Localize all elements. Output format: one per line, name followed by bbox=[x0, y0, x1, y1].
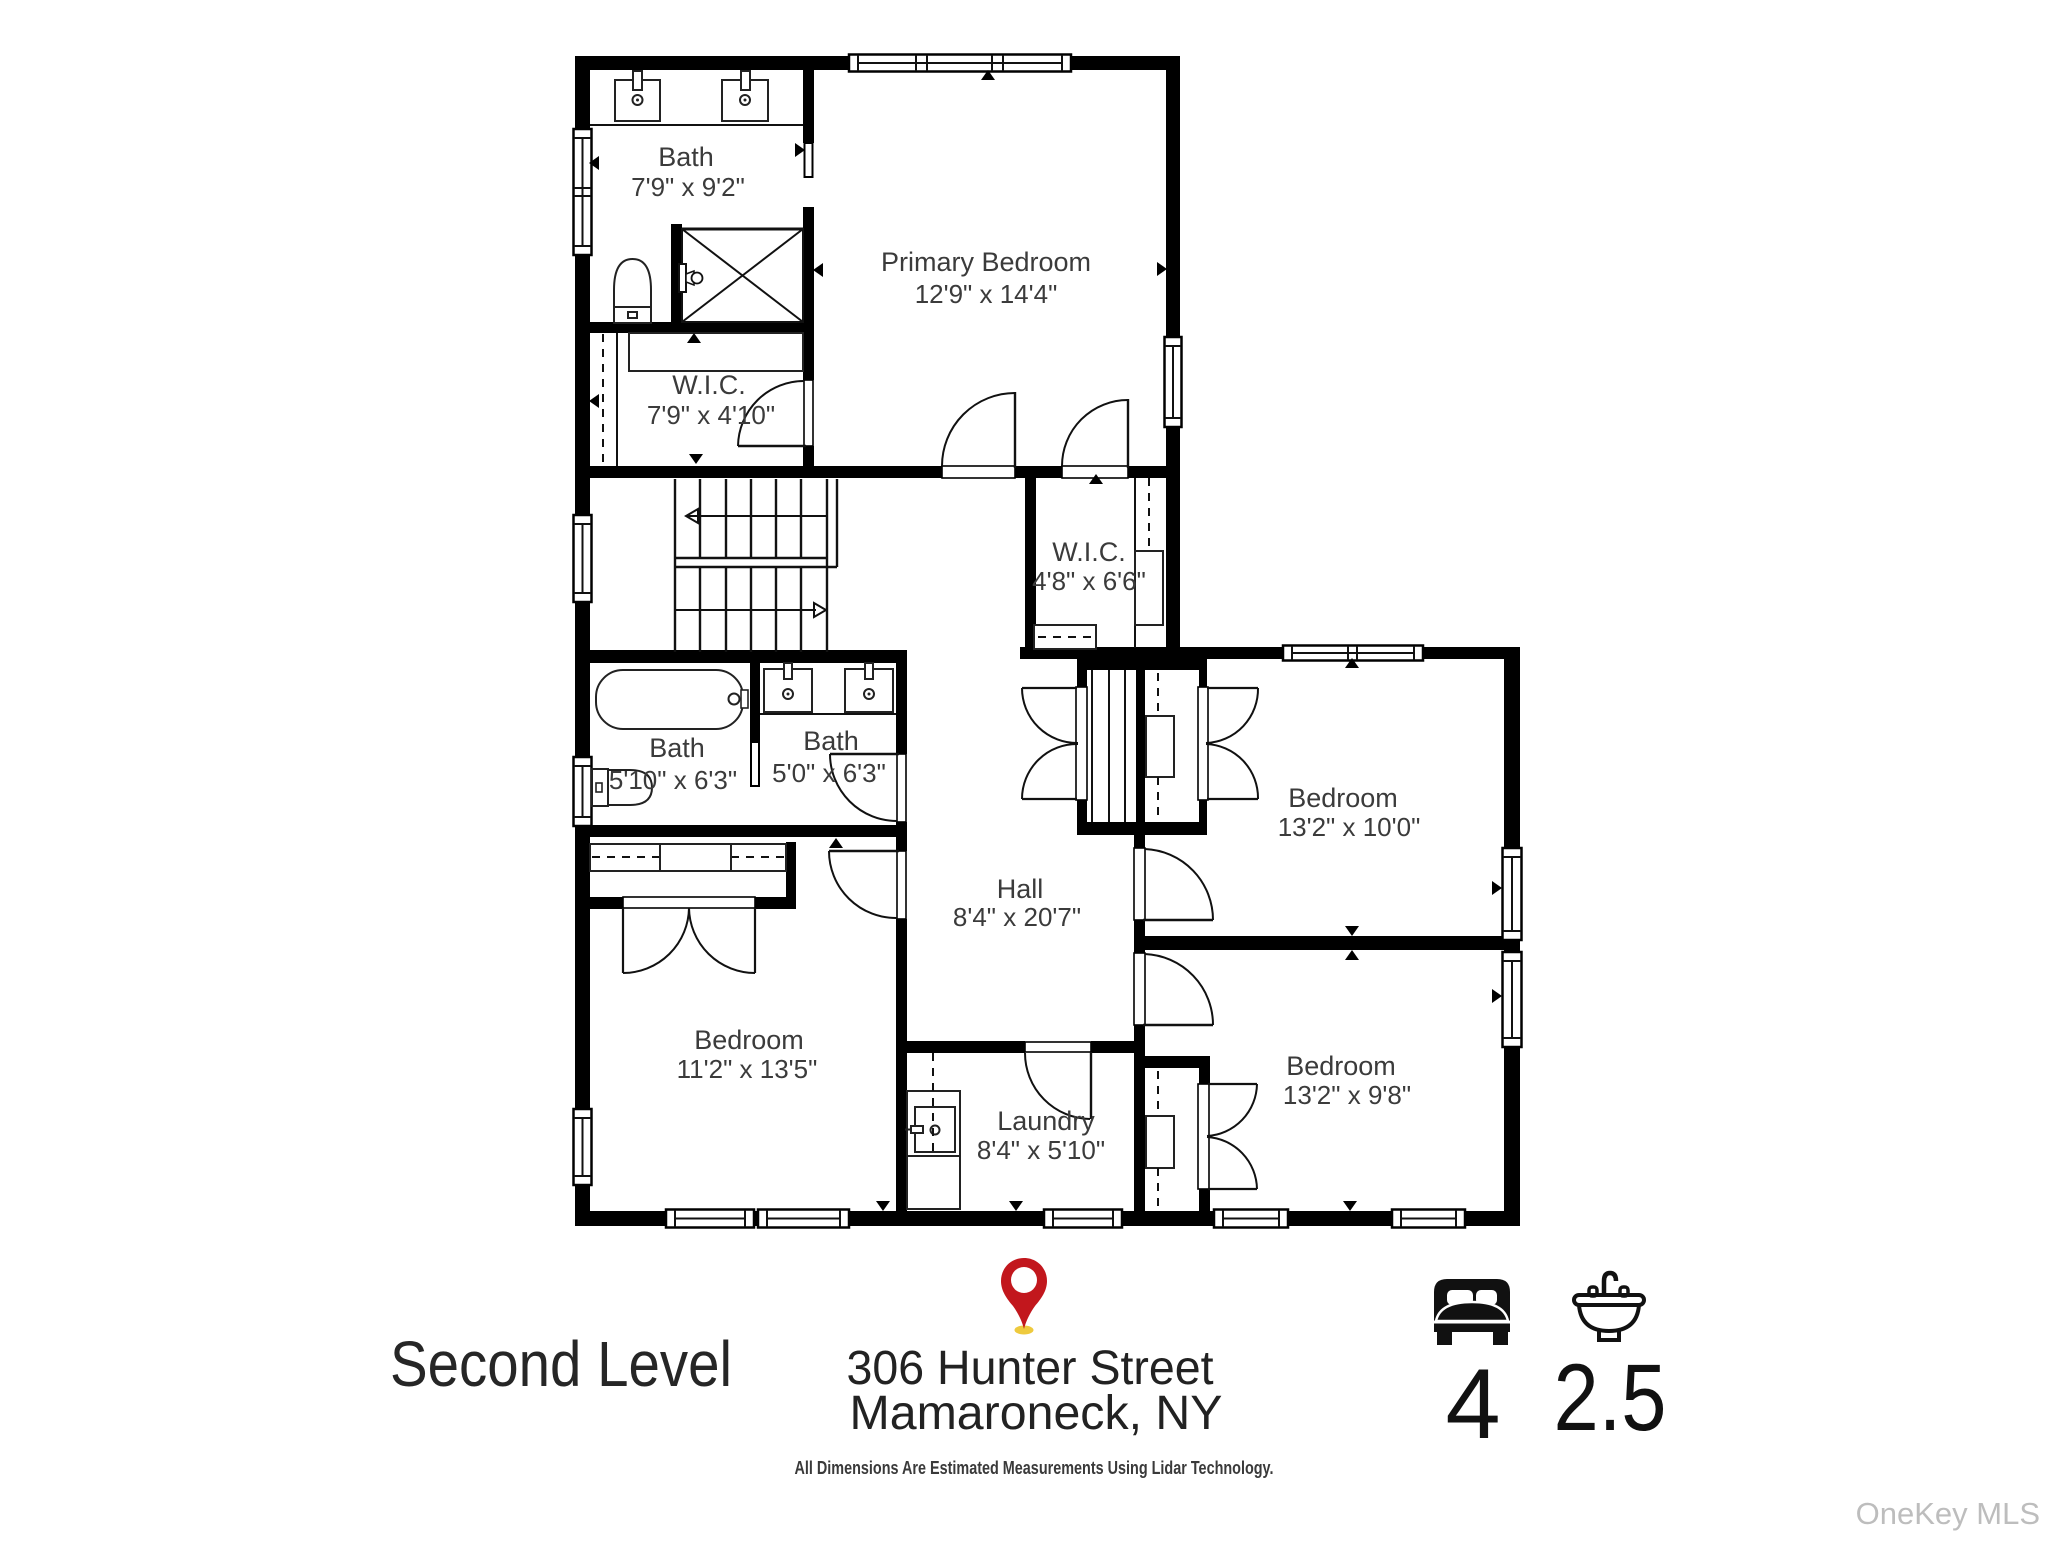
svg-text:13'2" x 10'0": 13'2" x 10'0" bbox=[1278, 812, 1421, 842]
svg-text:Laundry: Laundry bbox=[997, 1106, 1095, 1136]
svg-text:4'8" x 6'6": 4'8" x 6'6" bbox=[1032, 566, 1146, 596]
svg-text:Primary Bedroom: Primary Bedroom bbox=[881, 247, 1091, 277]
svg-text:4: 4 bbox=[1445, 1348, 1500, 1459]
svg-text:2.5: 2.5 bbox=[1554, 1345, 1667, 1451]
svg-text:12'9" x 14'4": 12'9" x 14'4" bbox=[915, 279, 1058, 309]
svg-text:W.I.C.: W.I.C. bbox=[1052, 537, 1126, 567]
svg-text:11'2" x 13'5": 11'2" x 13'5" bbox=[677, 1054, 818, 1084]
svg-text:OneKey MLS: OneKey MLS bbox=[1856, 1496, 2040, 1531]
svg-text:5'10" x 6'3": 5'10" x 6'3" bbox=[609, 765, 737, 795]
svg-text:7'9" x 9'2": 7'9" x 9'2" bbox=[631, 172, 745, 202]
svg-text:Bedroom: Bedroom bbox=[1288, 783, 1398, 813]
svg-text:Bedroom: Bedroom bbox=[694, 1025, 804, 1055]
svg-text:Hall: Hall bbox=[997, 874, 1044, 904]
svg-text:5'0" x 6'3": 5'0" x 6'3" bbox=[772, 758, 886, 788]
svg-text:All Dimensions Are Estimated M: All Dimensions Are Estimated Measurement… bbox=[795, 1458, 1274, 1478]
svg-text:Bath: Bath bbox=[658, 142, 714, 172]
svg-text:Bath: Bath bbox=[803, 726, 859, 756]
svg-text:Mamaroneck, NY: Mamaroneck, NY bbox=[850, 1387, 1223, 1440]
svg-text:13'2" x 9'8": 13'2" x 9'8" bbox=[1283, 1080, 1411, 1110]
svg-text:8'4" x 20'7": 8'4" x 20'7" bbox=[953, 902, 1081, 932]
svg-text:7'9" x 4'10": 7'9" x 4'10" bbox=[647, 400, 775, 430]
svg-text:Second Level: Second Level bbox=[390, 1328, 732, 1400]
svg-text:8'4" x 5'10": 8'4" x 5'10" bbox=[977, 1135, 1105, 1165]
svg-text:W.I.C.: W.I.C. bbox=[672, 370, 746, 400]
svg-text:Bedroom: Bedroom bbox=[1286, 1051, 1396, 1081]
svg-text:Bath: Bath bbox=[649, 733, 705, 763]
